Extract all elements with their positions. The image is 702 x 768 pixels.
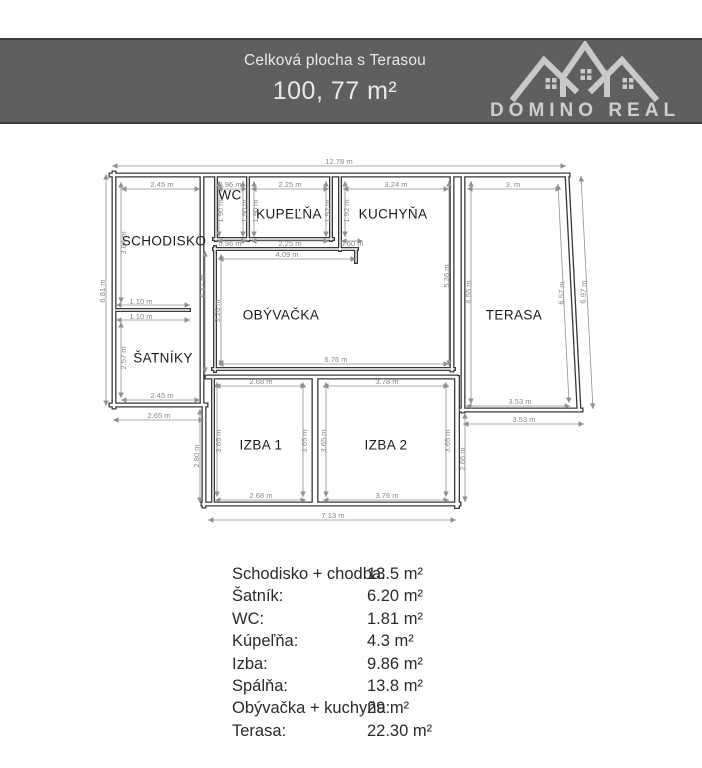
area-row-label: WC: [232,610,264,628]
dimension-label: 1.92 m [323,199,332,222]
dimension-label: 2.80 m [192,444,201,467]
dimension-label: 6.97 m [578,280,588,304]
dimension-label: 5.36 m [442,264,451,287]
area-row-value: 1.81 m² [367,608,423,630]
dimension-label: 2.25 m [278,239,301,248]
area-row-label: Terasa: [232,722,286,740]
area-row-label: Izba: [232,655,268,673]
area-row-value: 22.30 m² [367,720,432,742]
area-row-value: 29 m² [367,697,409,719]
dimension-label: 3.76 m [375,491,398,500]
dimension-label: 1.10 m [129,297,152,306]
total-area-caption: Celková plocha s Terasou [150,52,520,70]
dimension-label: 2.68 m [249,491,272,500]
area-row: Schodisko + chodba:13.5 m² [232,563,390,585]
area-row-value: 13.5 m² [367,563,423,585]
dimension-label: 1.92 m [342,199,351,222]
room-label: IZBA 1 [240,438,283,453]
dimension-label: 3.65 m [300,429,309,452]
area-row: Izba:9.86 m² [232,653,390,675]
total-area-value: 100, 77 m² [150,77,520,106]
dimension-label: 12.78 m [325,157,352,166]
area-row: Spálňa:13.8 m² [232,675,390,697]
dimension-label: 2.57 m [119,346,128,369]
room-label: SCHODISKO [122,234,207,249]
area-row-value: 13.8 m² [367,675,423,697]
dimension-label: 3.65 m [443,429,452,452]
floorplan-svg: 12.78 m2.45 m0.96 m2.25 m3.24 m3. m0.96 … [0,140,702,535]
dimension-label: 1.90 m [240,199,249,222]
dimension-label: 3.65 m [214,429,223,452]
dimension-label: 3.65 m [319,429,328,452]
dimension-label: 2.66 m [458,447,467,470]
dimension-label: 2.65 m [147,411,170,420]
dimension-label: 3.78 m [375,377,398,386]
dimension-label: 1.90 m [216,199,225,222]
dimension-label: 2.45 m [150,391,173,400]
area-summary-list: Schodisko + chodba:13.5 m²Šatník:6.20 m²… [232,563,390,742]
dimension-label: 3.53 m [512,415,535,424]
area-row-label: Kúpeľňa: [232,632,298,650]
dimension-label: 7.13 m [321,511,344,520]
dimension-label: 6.41 m [198,274,207,297]
dimension-label: 0.96 m [218,239,241,248]
area-row-value: 6.20 m² [367,585,423,607]
dimension-label: 0.60 m [340,239,363,248]
room-label: KUPEĽŇA [256,207,322,222]
area-row-label: Spálňa: [232,677,288,695]
room-label: KUCHYŇA [359,207,428,222]
area-row: WC:1.81 m² [232,608,390,630]
header-bar: Celková plocha s Terasou 100, 77 m² DOMI… [0,38,702,124]
room-label: TERASA [486,308,542,323]
room-label: OBÝVAČKA [243,308,319,323]
dimension-label: 3. m [506,180,521,189]
dimension-label: 1.10 m [129,312,152,321]
room-label: WC [218,188,241,203]
brand-name: DOMINO REAL [480,100,690,122]
dimension-label: 2.25 m [278,180,301,189]
area-row-label: Schodisko + chodba: [232,565,386,583]
dimension-label: 3.53 m [508,397,531,406]
room-label: IZBA 2 [365,438,408,453]
area-row-value: 4.3 m² [367,630,414,652]
dimension-label: 3.24 m [384,180,407,189]
dimension-label: 2.68 m [249,377,272,386]
dimension-annotations: 12.78 m2.45 m0.96 m2.25 m3.24 m3. m0.96 … [98,157,593,520]
area-row: Terasa:22.30 m² [232,720,390,742]
area-row-label: Šatník: [232,587,283,605]
dimension-label: 6.81 m [98,279,107,302]
dimension-label: 2.45 m [150,180,173,189]
area-row: Kúpeľňa:4.3 m² [232,630,390,652]
dimension-label: 6.55 m [464,280,473,303]
area-row: Obývačka + kuchyňa:29 m² [232,697,390,719]
area-row: Šatník:6.20 m² [232,585,390,607]
area-row-value: 9.86 m² [367,653,423,675]
dimension-label: 6.57 m [556,281,566,305]
dimension-label: 6.76 m [324,355,347,364]
header-text-block: Celková plocha s Terasou 100, 77 m² [150,52,520,106]
room-label: ŠATNÍKY [133,351,193,366]
dimension-label: 3.26 m [213,299,222,322]
dimension-label: 4.09 m [275,250,298,259]
